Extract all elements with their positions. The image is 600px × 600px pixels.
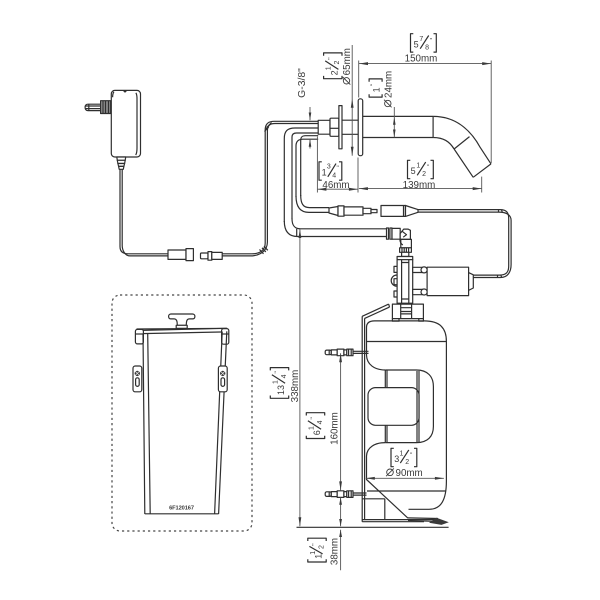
svg-text:1: 1 xyxy=(416,162,420,169)
svg-text:65mm: 65mm xyxy=(342,48,353,75)
svg-text:38mm: 38mm xyxy=(330,538,341,565)
svg-text:4: 4 xyxy=(332,172,336,179)
svg-text:5: 5 xyxy=(411,166,416,176)
svg-text:1: 1 xyxy=(400,450,404,457)
svg-text:1: 1 xyxy=(326,66,333,70)
svg-text:5: 5 xyxy=(414,40,419,50)
svg-text:3: 3 xyxy=(327,164,331,171)
svg-text:2: 2 xyxy=(318,545,325,549)
svg-text:6F120167: 6F120167 xyxy=(169,505,194,511)
svg-text:2: 2 xyxy=(334,61,341,65)
svg-text:13: 13 xyxy=(276,385,286,395)
svg-text:8: 8 xyxy=(425,44,429,51)
svg-text:2: 2 xyxy=(422,171,426,178)
svg-text:160mm: 160mm xyxy=(329,412,340,445)
svg-text:90mm: 90mm xyxy=(396,468,423,479)
svg-text:24mm: 24mm xyxy=(383,71,394,98)
svg-text:7: 7 xyxy=(419,36,423,43)
svg-text:1: 1 xyxy=(310,551,317,555)
svg-text:1: 1 xyxy=(322,168,327,178)
svg-text:2: 2 xyxy=(405,459,409,466)
svg-text:1: 1 xyxy=(272,380,279,384)
svg-text:150mm: 150mm xyxy=(405,54,438,65)
svg-text:G-3/8": G-3/8" xyxy=(297,68,308,98)
svg-text:46mm: 46mm xyxy=(322,180,349,191)
svg-text:4: 4 xyxy=(317,420,324,424)
svg-text:1: 1 xyxy=(371,87,381,92)
svg-text:1: 1 xyxy=(308,426,315,430)
svg-text:139mm: 139mm xyxy=(403,180,436,191)
svg-text:338mm: 338mm xyxy=(290,370,301,403)
svg-text:4: 4 xyxy=(281,374,288,378)
